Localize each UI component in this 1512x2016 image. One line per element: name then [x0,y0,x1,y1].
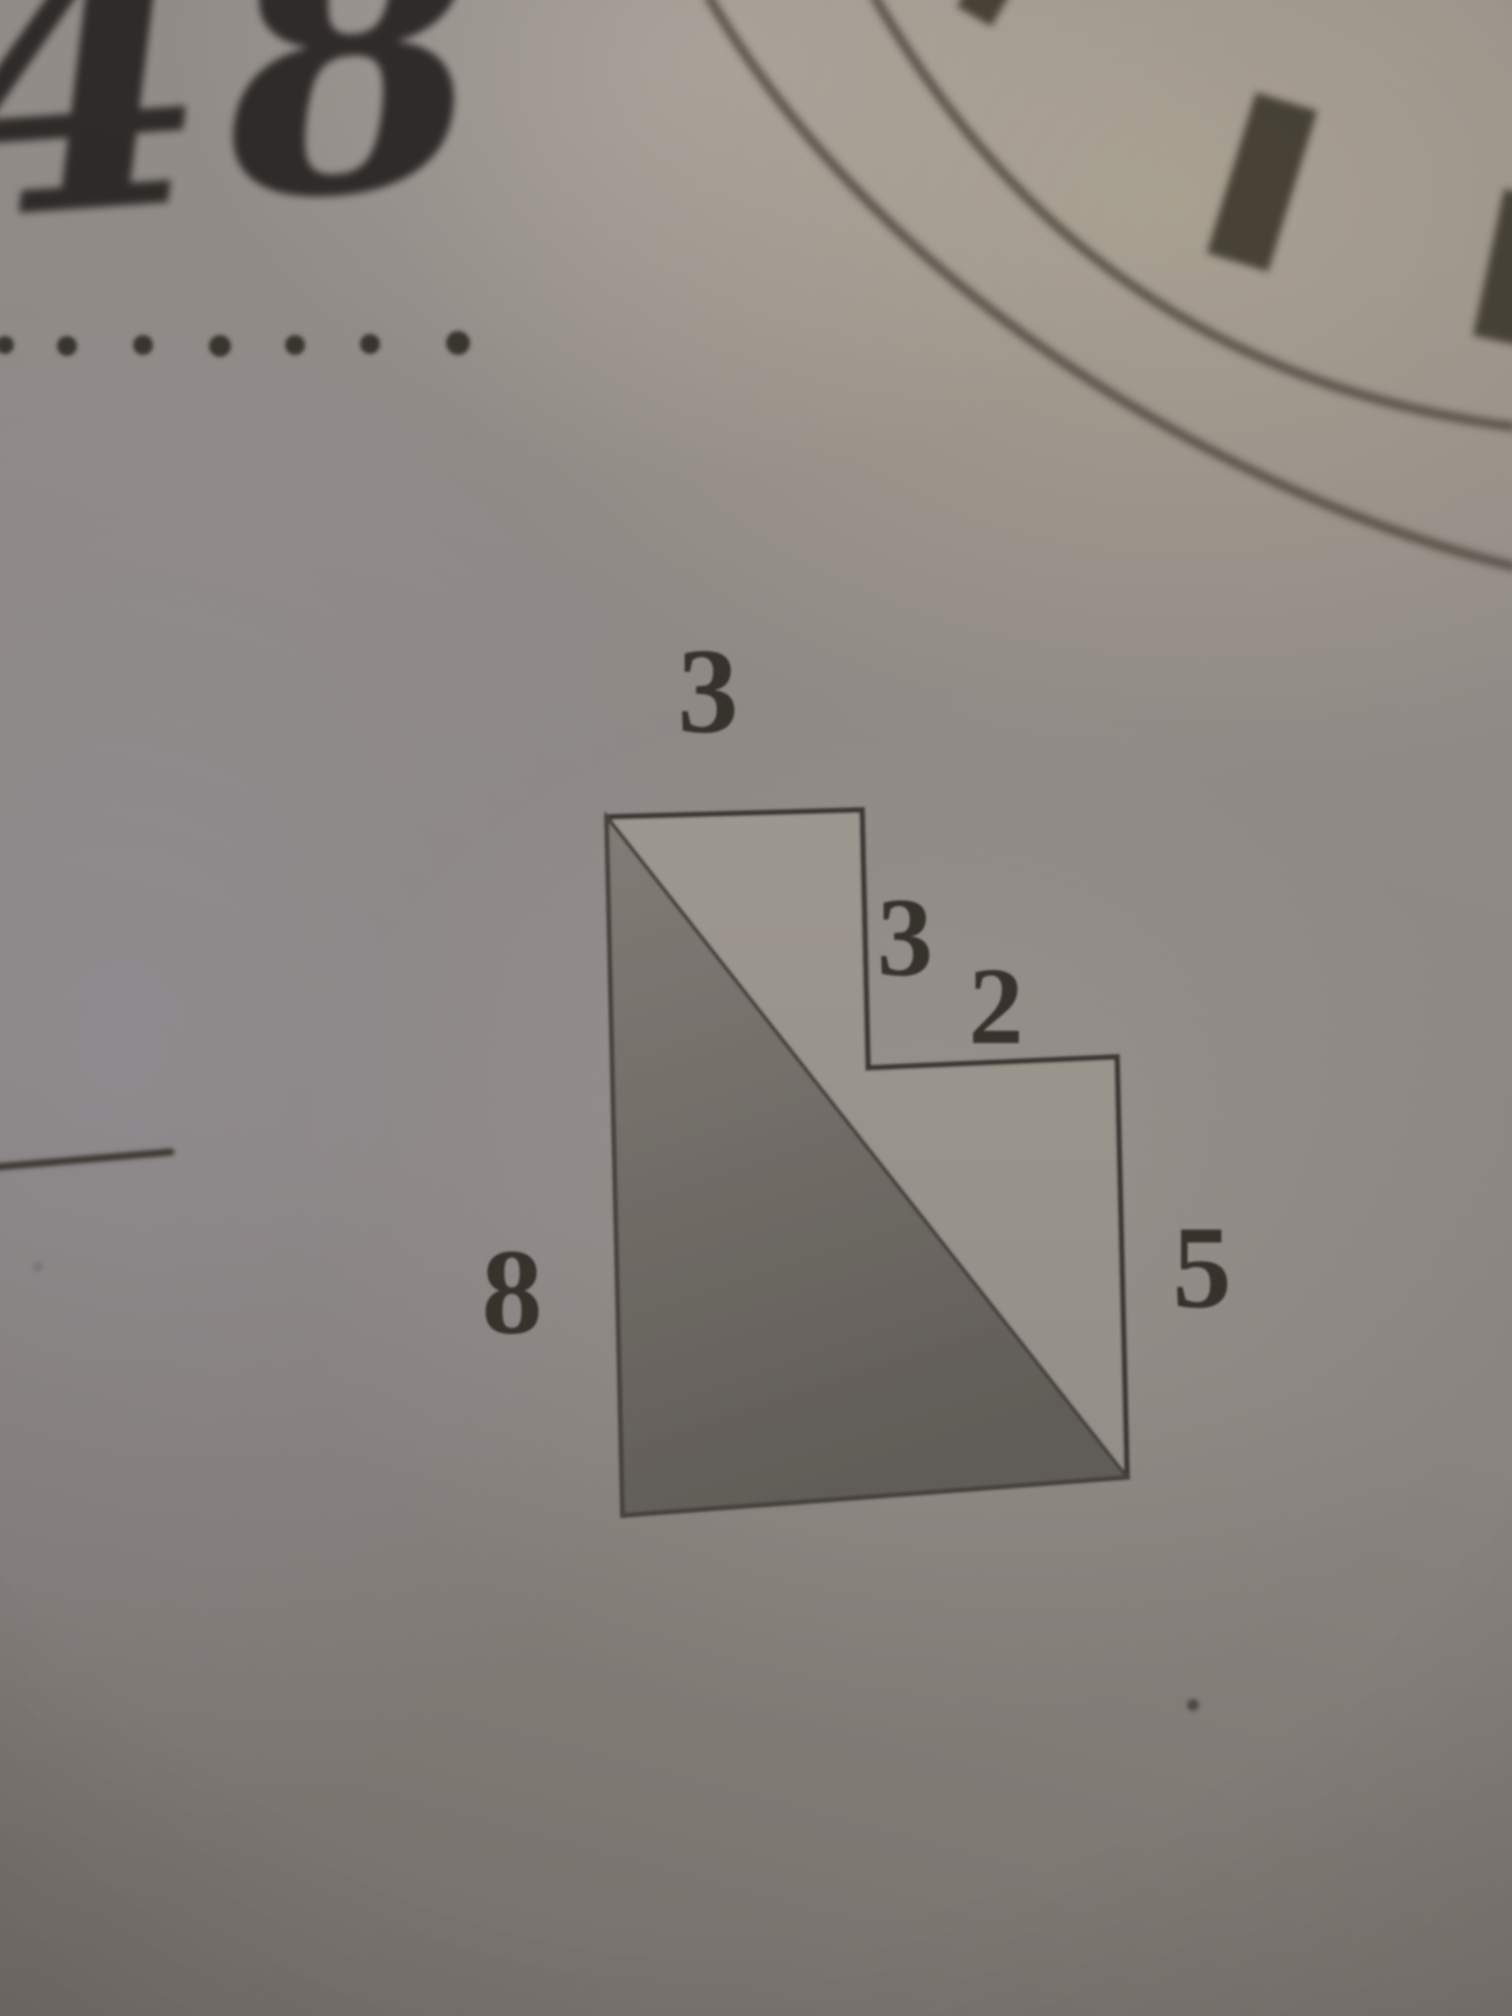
stamp-tick-icon [957,0,1018,27]
dot [0,336,14,354]
dimension-label-step-top: 2 [969,951,1024,1061]
dot [446,331,470,355]
stray-dot [1187,1699,1199,1711]
stamp-tick-icon [1207,92,1317,271]
stamp-inner-arc [873,0,1512,427]
stamp-ticks [957,0,1512,347]
dimension-label-top: 3 [678,631,739,753]
geometry-figure [607,810,1127,1515]
stamp-tick-icon [1473,189,1512,347]
dimension-label-step-right: 3 [877,882,933,994]
stamp-outer-arc [707,0,1512,567]
answer-line [0,1152,171,1167]
dot [360,334,380,354]
dot [133,335,153,355]
dot [285,335,305,355]
dimension-label-left: 8 [482,1232,543,1354]
dot [209,335,231,357]
dot [57,336,77,356]
dotted-line [0,331,470,357]
stamp-arcs [707,0,1512,567]
diagram-canvas [0,0,1512,2016]
dimension-label-right: 5 [1173,1209,1232,1327]
worksheet-photo: 48 [0,0,1512,2016]
stray-dot [33,1262,43,1272]
